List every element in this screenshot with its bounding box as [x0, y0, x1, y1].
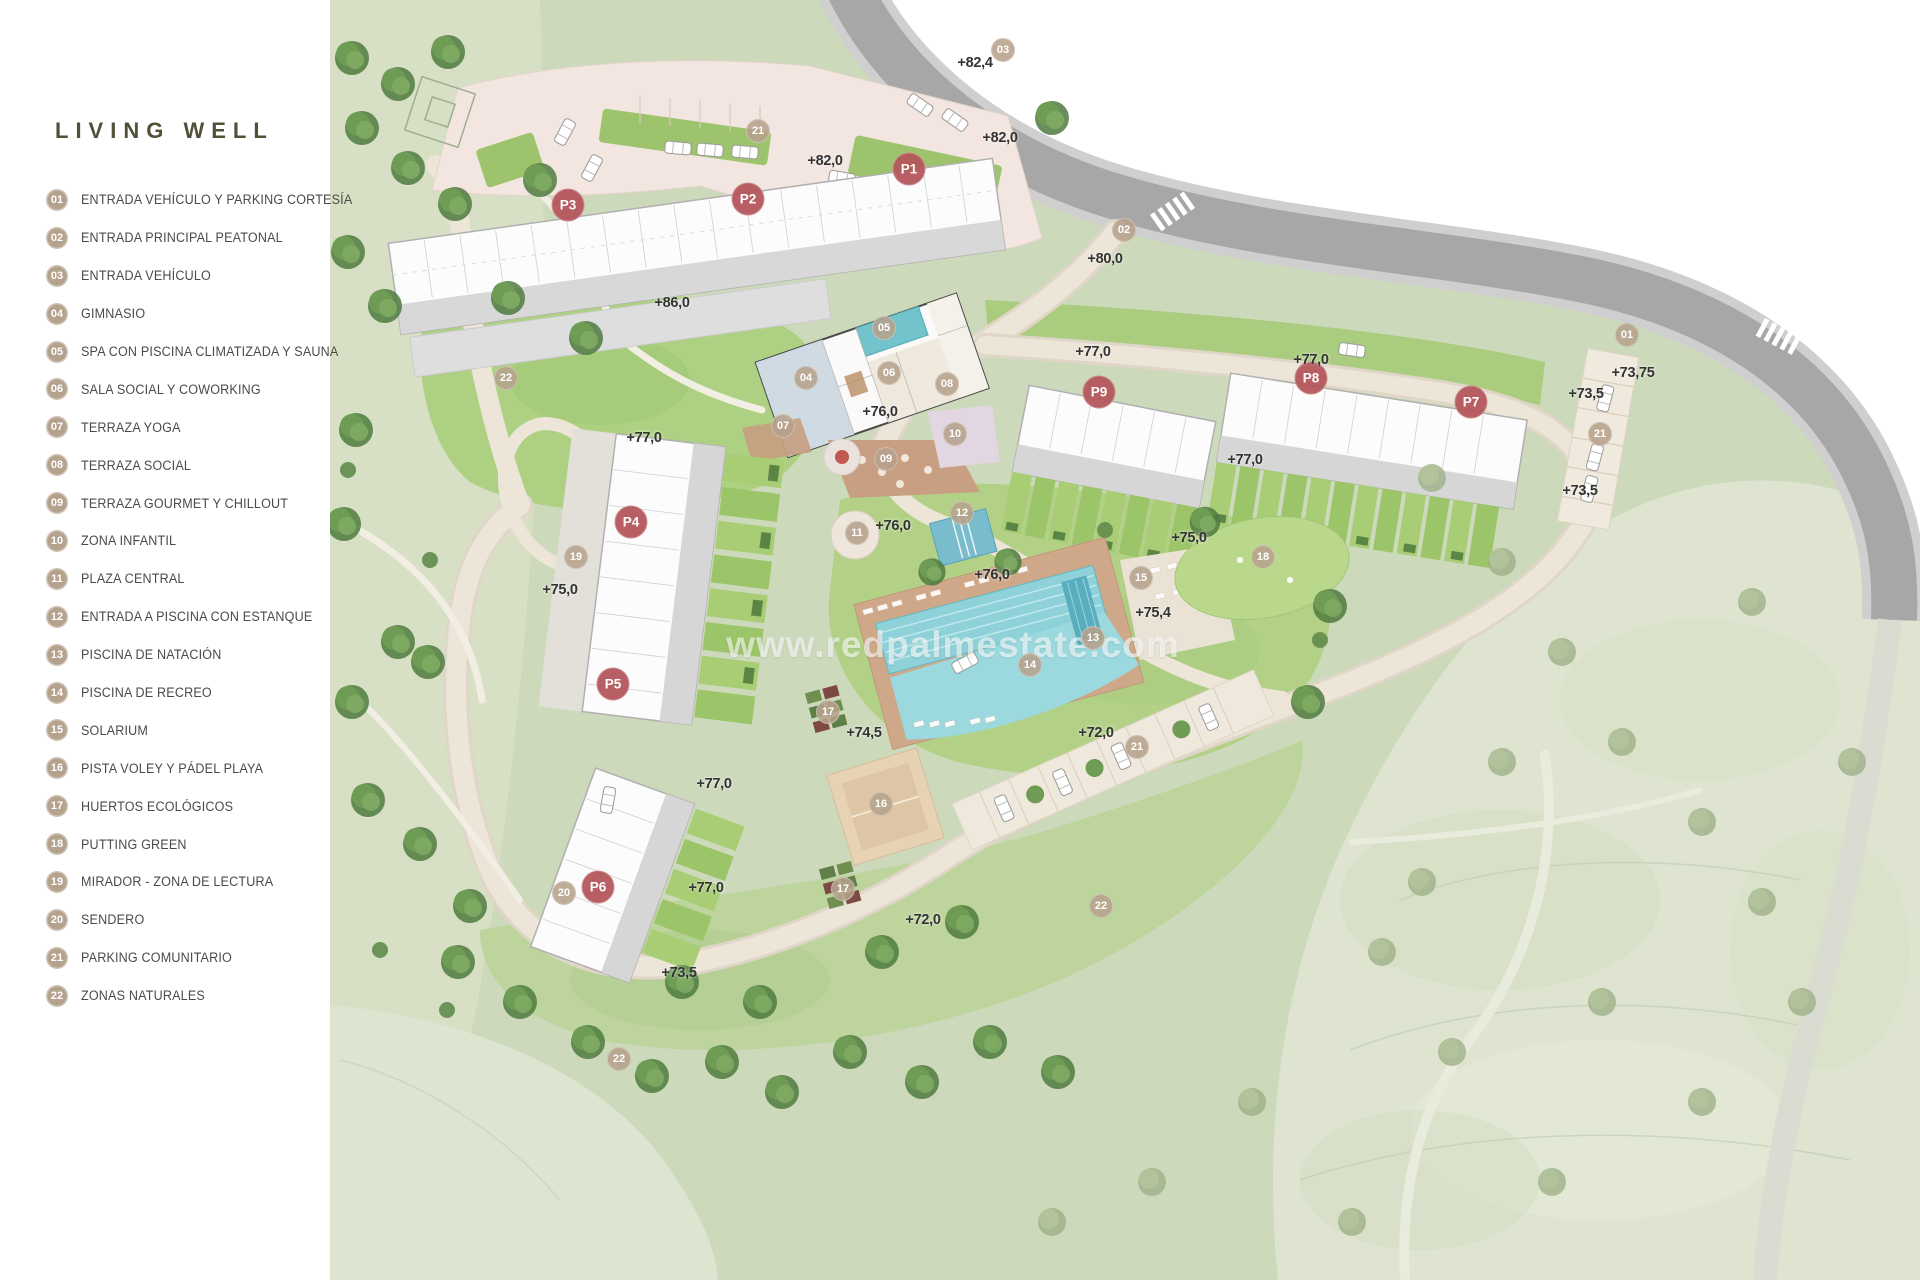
legend-item-label: PLAZA CENTRAL: [81, 571, 185, 586]
legend-badge: 10: [46, 530, 68, 552]
legend-badge: 17: [46, 795, 68, 817]
legend-item-05: 05SPA CON PISCINA CLIMATIZADA Y SAUNA: [46, 333, 373, 371]
legend-item-04: 04GIMNASIO: [46, 295, 373, 333]
central-plaza: [831, 511, 879, 559]
legend-item-02: 02ENTRADA PRINCIPAL PEATONAL: [46, 219, 373, 257]
legend-item-label: TERRAZA SOCIAL: [81, 458, 191, 473]
legend-badge: 20: [46, 909, 68, 931]
legend-item-label: SPA CON PISCINA CLIMATIZADA Y SAUNA: [81, 344, 338, 359]
legend-item-06: 06SALA SOCIAL Y COWORKING: [46, 370, 373, 408]
legend-item-label: SENDERO: [81, 912, 144, 927]
legend-item-label: PISCINA DE RECREO: [81, 685, 212, 700]
legend-badge: 15: [46, 719, 68, 741]
legend-item-07: 07TERRAZA YOGA: [46, 408, 373, 446]
legend-item-label: ENTRADA A PISCINA CON ESTANQUE: [81, 609, 312, 624]
legend-item-14: 14PISCINA DE RECREO: [46, 674, 373, 712]
legend-badge: 22: [46, 985, 68, 1007]
building-p4-p5: [538, 428, 785, 732]
legend-badge: 21: [46, 947, 68, 969]
legend-item-label: MIRADOR - ZONA DE LECTURA: [81, 874, 273, 889]
legend-item-08: 08TERRAZA SOCIAL: [46, 446, 373, 484]
legend-badge: 11: [46, 568, 68, 590]
legend-item-label: PUTTING GREEN: [81, 837, 187, 852]
legend-list: 01ENTRADA VEHÍCULO Y PARKING CORTESÍA02E…: [46, 181, 373, 1015]
legend-item-19: 19MIRADOR - ZONA DE LECTURA: [46, 863, 373, 901]
legend-badge: 08: [46, 454, 68, 476]
legend-item-09: 09TERRAZA GOURMET Y CHILLOUT: [46, 484, 373, 522]
legend-badge: 09: [46, 492, 68, 514]
legend-item-label: GIMNASIO: [81, 306, 145, 321]
legend-item-13: 13PISCINA DE NATACIÓN: [46, 636, 373, 674]
legend-badge: 14: [46, 682, 68, 704]
legend-item-15: 15SOLARIUM: [46, 711, 373, 749]
legend-item-label: ZONA INFANTIL: [81, 533, 176, 548]
legend-item-20: 20SENDERO: [46, 901, 373, 939]
legend-panel: LIVING WELL 01ENTRADA VEHÍCULO Y PARKING…: [0, 0, 330, 1280]
plan-title: LIVING WELL: [55, 118, 274, 144]
legend-item-label: TERRAZA GOURMET Y CHILLOUT: [81, 496, 288, 511]
legend-item-22: 22ZONAS NATURALES: [46, 977, 373, 1015]
kids-area: [928, 405, 1000, 468]
legend-badge: 13: [46, 644, 68, 666]
legend-item-label: ZONAS NATURALES: [81, 988, 205, 1003]
watermark: www.redpalmestate.com: [726, 624, 1180, 666]
masterplan-page: www.redpalmestate.com P1P2P3P4P5P6P7P8P9…: [0, 0, 1920, 1280]
legend-item-11: 11PLAZA CENTRAL: [46, 560, 373, 598]
legend-item-12: 12ENTRADA A PISCINA CON ESTANQUE: [46, 598, 373, 636]
legend-item-10: 10ZONA INFANTIL: [46, 522, 373, 560]
legend-item-label: PISTA VOLEY Y PÁDEL PLAYA: [81, 761, 263, 776]
legend-item-label: SOLARIUM: [81, 723, 148, 738]
legend-badge: 16: [46, 757, 68, 779]
legend-item-16: 16PISTA VOLEY Y PÁDEL PLAYA: [46, 749, 373, 787]
legend-item-label: ENTRADA VEHÍCULO: [81, 268, 211, 283]
legend-item-17: 17HUERTOS ECOLÓGICOS: [46, 787, 373, 825]
legend-item-label: ENTRADA VEHÍCULO Y PARKING CORTESÍA: [81, 192, 352, 207]
legend-badge: 04: [46, 303, 68, 325]
legend-item-03: 03ENTRADA VEHÍCULO: [46, 257, 373, 295]
legend-item-label: TERRAZA YOGA: [81, 420, 181, 435]
legend-badge: 12: [46, 606, 68, 628]
legend-badge: 18: [46, 833, 68, 855]
legend-item-label: HUERTOS ECOLÓGICOS: [81, 799, 233, 814]
legend-badge: 01: [46, 189, 68, 211]
legend-badge: 05: [46, 341, 68, 363]
legend-item-01: 01ENTRADA VEHÍCULO Y PARKING CORTESÍA: [46, 181, 373, 219]
legend-badge: 19: [46, 871, 68, 893]
legend-item-label: PISCINA DE NATACIÓN: [81, 647, 222, 662]
playground-feature: [835, 450, 849, 464]
legend-item-label: ENTRADA PRINCIPAL PEATONAL: [81, 230, 283, 245]
legend-item-label: SALA SOCIAL Y COWORKING: [81, 382, 261, 397]
legend-badge: 07: [46, 416, 68, 438]
legend-badge: 02: [46, 227, 68, 249]
legend-badge: 06: [46, 378, 68, 400]
legend-item-label: PARKING COMUNITARIO: [81, 950, 232, 965]
legend-badge: 03: [46, 265, 68, 287]
legend-item-18: 18PUTTING GREEN: [46, 825, 373, 863]
legend-item-21: 21PARKING COMUNITARIO: [46, 939, 373, 977]
